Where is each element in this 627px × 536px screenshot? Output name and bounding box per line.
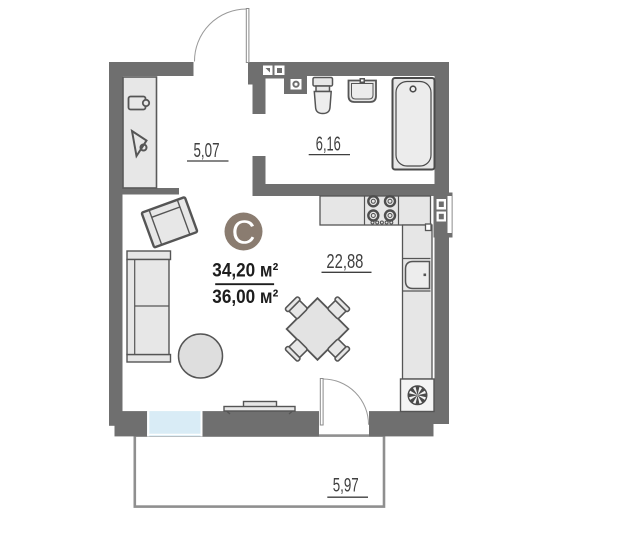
svg-text:22,88: 22,88 — [326, 251, 363, 273]
svg-text:36,00 м²: 36,00 м² — [212, 287, 278, 308]
svg-text:6,16: 6,16 — [316, 134, 341, 156]
svg-text:34,20 м²: 34,20 м² — [212, 261, 278, 282]
svg-text:5,97: 5,97 — [333, 474, 359, 496]
svg-text:C: C — [232, 214, 256, 251]
svg-text:5,07: 5,07 — [194, 140, 220, 162]
